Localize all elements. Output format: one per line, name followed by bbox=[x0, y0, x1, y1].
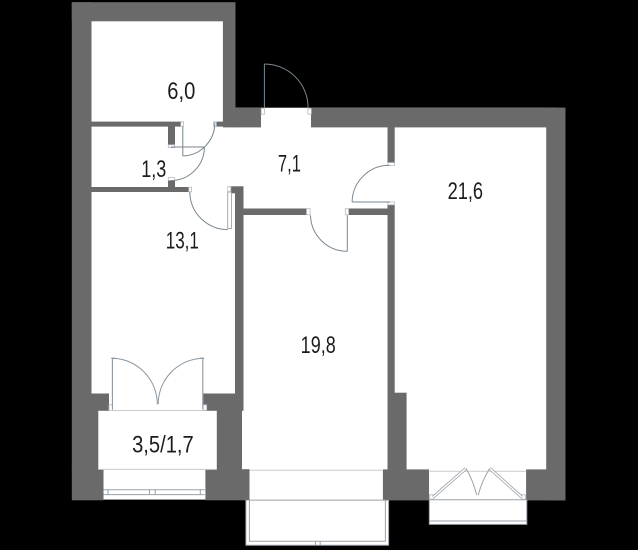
svg-text:6,0: 6,0 bbox=[167, 78, 195, 105]
svg-text:1,3: 1,3 bbox=[141, 156, 166, 182]
svg-text:3,5/1,7: 3,5/1,7 bbox=[132, 431, 194, 458]
svg-text:19,8: 19,8 bbox=[301, 333, 336, 359]
svg-text:21,6: 21,6 bbox=[448, 177, 483, 204]
svg-text:13,1: 13,1 bbox=[166, 228, 199, 255]
svg-text:7,1: 7,1 bbox=[278, 150, 301, 177]
